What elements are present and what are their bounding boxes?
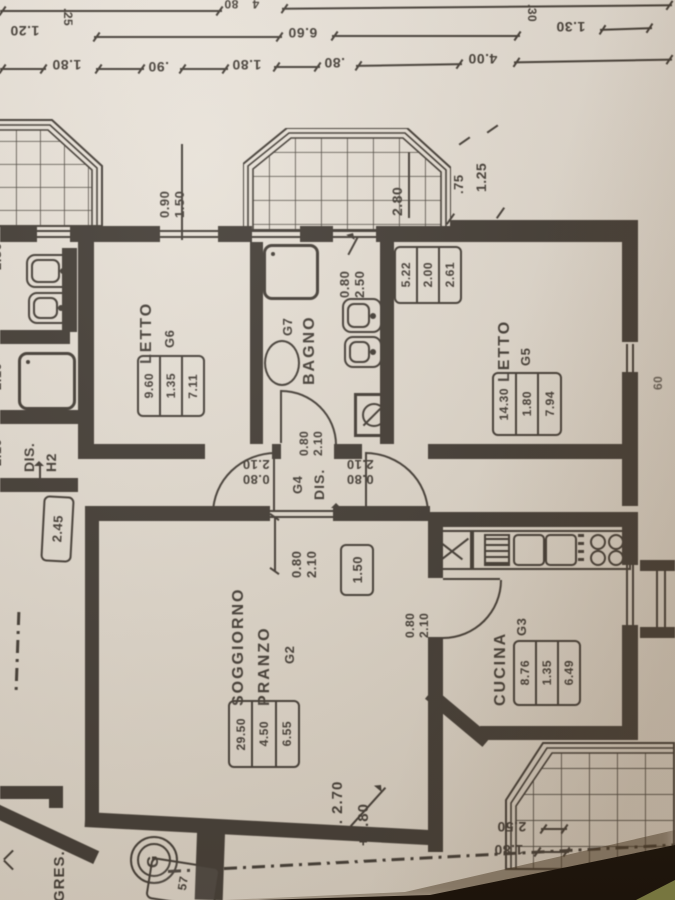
window-line <box>626 344 628 372</box>
wall <box>622 242 638 342</box>
dim-line <box>356 63 462 67</box>
dim-fragment: 2.10 <box>0 424 3 466</box>
cucina-door-dim: 0.80 2.10 <box>404 582 432 638</box>
table-cell: 2.00 <box>422 262 434 287</box>
table-cell: 1.80 <box>521 391 533 416</box>
table-cell: 6.49 <box>563 660 575 685</box>
dim-label: 0.80 <box>338 471 382 486</box>
measure-table-g2: 29.50 4.50 6.55 <box>228 700 300 768</box>
wall <box>0 478 78 492</box>
dis-h2-code: H2 <box>44 442 58 472</box>
dim-label: 1.50 <box>351 556 364 583</box>
dim-fragment: 2.10 <box>0 348 3 390</box>
wall <box>78 444 205 459</box>
window-line <box>252 236 300 238</box>
threshold-line <box>270 516 333 518</box>
door-left-dim: 0.80 2.10 <box>234 456 278 486</box>
zigzag-line <box>441 538 469 561</box>
dim-label: 1.80 <box>52 58 81 72</box>
boundary-dashdot-line <box>15 612 21 690</box>
dim-label: 2.10 <box>312 418 326 456</box>
dim-label: 0.80 <box>290 522 305 578</box>
dis-g4-cell: 1.50 <box>340 544 374 596</box>
measure-table-g5-alt: 5.22 2.00 2.61 <box>394 246 462 304</box>
table-cell: 1.35 <box>165 373 177 398</box>
table-cell: 9.60 <box>143 373 155 398</box>
table-cell: 5.22 <box>400 262 412 287</box>
room-code-g7: G7 <box>281 308 294 336</box>
ingresso-label: GRES. <box>52 850 67 900</box>
dim-tick <box>3 860 14 871</box>
dim-line <box>94 36 282 38</box>
wall <box>0 330 70 344</box>
room-code-g5: G5 <box>519 338 532 366</box>
wall-stub <box>640 560 675 571</box>
wall <box>218 226 252 242</box>
dim-label: .25 <box>62 8 74 26</box>
measure-table-g6: 9.60 1.35 7.11 <box>137 355 205 417</box>
bagno-door-dim: 0.80 2.10 <box>298 418 326 456</box>
dimension-rows-top: 80 4 1.20 .25 6.60 .30 1.30 1.80 .90 1.8… <box>0 0 675 84</box>
wall <box>62 248 77 332</box>
dim-label: 4 <box>252 0 259 10</box>
window-line <box>37 236 70 238</box>
dim-line <box>96 68 144 70</box>
dim-label: 2.10 <box>305 522 320 578</box>
room-code-g3: G3 <box>515 608 528 636</box>
dim-tick <box>3 850 14 861</box>
terrace-dim: 2.50 <box>497 820 526 834</box>
wall <box>622 625 638 740</box>
wall <box>622 527 638 565</box>
zigzag-line <box>435 538 463 561</box>
dim-label: 2.10 <box>418 582 432 638</box>
shower-icon <box>263 244 319 300</box>
dim-label: 0.80 <box>338 254 353 298</box>
dim-label: 2.45 <box>50 515 64 543</box>
dim-tick <box>459 136 471 145</box>
dim-label: 6.60 <box>288 26 317 40</box>
door-leaf <box>443 578 500 580</box>
threshold-line <box>270 510 333 512</box>
arrow-line <box>347 237 358 256</box>
room-code-g6: G6 <box>163 320 176 348</box>
sink-icon <box>264 340 300 386</box>
arrow-ne-icon <box>374 778 388 792</box>
room-label-soggiorno: SOGGIORNO <box>231 556 247 706</box>
balcony-top-left <box>0 118 105 228</box>
shower-icon <box>18 352 76 410</box>
wall <box>428 637 443 852</box>
dim-label: .30 <box>526 4 538 22</box>
room-code-g2: G2 <box>283 636 296 664</box>
wall <box>0 226 37 242</box>
kitchen-sink-icon <box>513 534 545 566</box>
door-right-dim: 0.80 2.10 <box>338 456 382 486</box>
wall <box>49 786 63 808</box>
table-cell: 6.55 <box>281 721 293 746</box>
dim-fragment: 2.50 <box>0 228 3 270</box>
wall-line <box>664 571 666 627</box>
elevation-label: +2.80 <box>356 770 371 846</box>
floor-plan-photo: 80 4 1.20 .25 6.60 .30 1.30 1.80 .90 1.8… <box>0 0 675 900</box>
dim-line <box>541 828 567 830</box>
dim-label: .80 <box>324 56 345 70</box>
dim-line <box>408 152 410 218</box>
balcony-depth-label: 2.80 <box>390 154 404 216</box>
pass-dim: 0.80 2.10 <box>290 522 320 578</box>
corner-dim-b: 1.25 <box>474 138 488 192</box>
corner-dim-a: .75 <box>452 152 465 194</box>
dim-label: 1.80 <box>232 58 261 72</box>
dim-line <box>180 68 228 70</box>
dim-line <box>274 66 320 68</box>
dim-line <box>181 144 183 240</box>
wall <box>480 726 638 740</box>
room-label-dis-g4: DIS. <box>312 454 326 500</box>
window-line <box>160 236 218 238</box>
dim-label: 0.80 <box>234 471 278 486</box>
table-cell: 29.50 <box>235 718 247 751</box>
stove-knobs-icon <box>578 534 584 562</box>
g6-window-dim: 0.90 1.50 <box>158 146 188 218</box>
dis-h2-cell: 2.45 <box>40 495 74 563</box>
dim-line <box>332 35 520 37</box>
arrow-up-icon <box>34 456 44 466</box>
wall-line <box>656 571 658 627</box>
wall <box>0 410 78 424</box>
wall <box>300 226 333 242</box>
dim-tick <box>487 124 499 133</box>
stove-burner-icon <box>590 534 606 550</box>
dim-label: 2.10 <box>338 456 382 471</box>
wall <box>622 372 638 506</box>
bagno-window-dim: 0.80 2.50 <box>338 254 368 298</box>
dim-line <box>514 59 672 64</box>
window-line <box>37 230 70 232</box>
wall <box>376 226 452 242</box>
stove-burner-icon <box>590 550 606 566</box>
dim-fragment: 60 <box>652 356 664 390</box>
window-line <box>252 230 300 232</box>
room-label-letto-g5: LETTO <box>497 300 513 382</box>
kitchen-sink-icon <box>545 534 577 566</box>
measure-table-g3: 8.76 1.35 6.49 <box>513 640 581 706</box>
bidet-icon <box>344 336 382 368</box>
table-cell: 2.61 <box>444 262 456 287</box>
dish-drainer-icon <box>484 534 510 566</box>
room-label-pranzo: PRANZO <box>257 590 273 706</box>
dim-label: 57 <box>176 875 190 891</box>
dim-label: 2.10 <box>234 456 278 471</box>
wall <box>428 512 638 527</box>
dim-label: 2.50 <box>353 254 368 298</box>
dim-label: 1.20 <box>10 24 39 38</box>
window-line <box>632 565 634 625</box>
dim-label: 0.80 <box>404 582 418 638</box>
room-label-bagno: BAGNO <box>302 305 318 385</box>
dim-line <box>0 10 222 12</box>
dim-label: 4.00 <box>468 52 497 66</box>
dim-line <box>282 4 672 9</box>
dim-label: 0.90 <box>158 146 173 218</box>
room-label-letto-g6: LETTO <box>139 282 155 364</box>
dim-label: 1.30 <box>556 20 585 34</box>
window-line <box>160 230 218 232</box>
dim-label: 80 <box>224 0 238 10</box>
dim-label: .90 <box>148 60 169 74</box>
dim-tick <box>496 207 505 219</box>
dim-label: 0.80 <box>298 418 312 456</box>
wall-stub <box>640 627 675 638</box>
toilet-icon <box>342 298 382 333</box>
balcony-top-center <box>243 128 451 231</box>
measure-table-g5: 14.30 1.80 7.94 <box>492 372 562 436</box>
wall <box>450 220 638 242</box>
table-cell: 7.94 <box>544 391 556 416</box>
floor-plan: 80 4 1.20 .25 6.60 .30 1.30 1.80 .90 1.8… <box>0 0 675 900</box>
table-cell: 7.11 <box>187 374 199 399</box>
wall <box>428 444 638 459</box>
room-code-g4: G4 <box>291 466 304 494</box>
room-label-cucina: CUCINA <box>493 620 509 706</box>
window-line <box>632 344 634 372</box>
ceiling-height-label: H. 2.70 <box>330 756 345 836</box>
dim-line <box>600 27 652 31</box>
table-cell: 14.30 <box>498 388 510 421</box>
wall <box>250 242 263 444</box>
table-cell: 8.76 <box>519 660 531 685</box>
window-line <box>626 565 628 625</box>
table-cell: 1.35 <box>541 660 553 685</box>
washing-machine-icon <box>354 393 394 437</box>
dim-line <box>274 517 276 571</box>
dim-line <box>0 68 46 70</box>
table-cell: 4.50 <box>258 721 270 746</box>
wall-party <box>78 232 94 444</box>
door-leaf <box>280 390 282 443</box>
wall-outer-left <box>85 521 99 821</box>
fridge-icon <box>432 530 472 570</box>
